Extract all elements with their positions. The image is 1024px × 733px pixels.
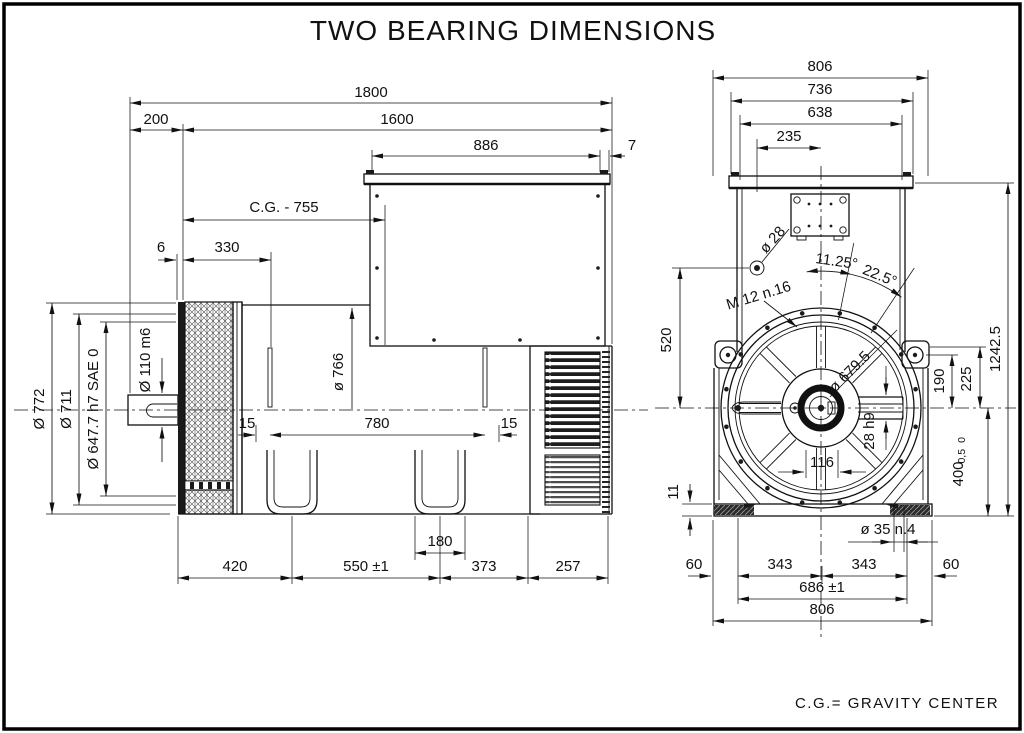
dim-hub-width: 116 (810, 454, 834, 471)
dim-ear-top-height: 225 (958, 366, 975, 391)
dim-half-span-right: 343 (851, 556, 876, 573)
dim-foot-hole: ø 35 n.4 (860, 521, 915, 538)
dim-frame-diameter: ø 766 (330, 353, 347, 391)
dim-width-overall-bottom: 806 (809, 601, 834, 618)
drawing-canvas: TWO BEARING DIMENSIONS (0, 0, 1024, 733)
dim-foot-d: 257 (555, 558, 580, 575)
dim-width-gland: 235 (776, 128, 801, 145)
dim-shaft-height-tol-lo: -0,5 (956, 449, 968, 467)
louver-panel-lower (545, 455, 600, 505)
dim-dia-frame: Ø 711 (58, 389, 75, 429)
dim-shaft-extension: 200 (143, 111, 168, 128)
dim-bracket-length: 330 (214, 239, 239, 256)
dim-terminal-box-width: 886 (473, 137, 498, 154)
dim-overall-length: 1800 (354, 84, 387, 101)
dim-adapter-gap: 6 (157, 239, 165, 256)
dim-dia-flange: Ø 647.7 h7 SAE 0 (85, 349, 102, 470)
drawing-title: TWO BEARING DIMENSIONS (310, 15, 716, 46)
dim-ear-height: 190 (931, 368, 948, 393)
dim-foot-a: 420 (222, 558, 247, 575)
dim-rear-gap: 7 (628, 137, 636, 154)
dim-gravity-center: C.G. - 755 (249, 199, 318, 216)
dim-foot-c: 373 (471, 558, 496, 575)
dim-hole-height: 520 (658, 327, 675, 352)
dim-width-overall-top: 806 (807, 58, 832, 75)
dim-width-cap: 736 (807, 81, 832, 98)
dim-dia-outer: Ø 772 (31, 389, 48, 430)
drive-end-grille (178, 302, 242, 514)
rib-edge (602, 350, 610, 514)
dim-half-span-left: 343 (767, 556, 792, 573)
dim-height-overall: 1242.5 (987, 326, 1004, 372)
dim-width-body: 638 (807, 104, 832, 121)
dim-edge-right: 60 (943, 556, 960, 573)
legend-text: C.G.= GRAVITY CENTER (795, 695, 999, 712)
louver-panel-upper (545, 352, 600, 448)
dim-slot-width: 180 (427, 533, 452, 550)
dim-pad-height: 11 (665, 484, 682, 500)
dim-dia-shaft: Ø 110 m6 (137, 328, 154, 393)
dim-key-right: 15 (501, 415, 518, 432)
dim-key-left: 15 (239, 415, 256, 432)
drawing-sheet: TWO BEARING DIMENSIONS (0, 0, 1024, 733)
dim-shaft-height-tol-hi: 0 (956, 437, 968, 443)
dim-foot-b: 550 ±1 (343, 558, 389, 575)
dim-bolt-span: 780 (364, 415, 389, 432)
dim-key-section: 28 h9 (861, 412, 878, 450)
dim-frame-length: 1600 (380, 111, 413, 128)
dim-foot-span: 686 ±1 (799, 579, 845, 596)
dim-edge-left: 60 (686, 556, 703, 573)
